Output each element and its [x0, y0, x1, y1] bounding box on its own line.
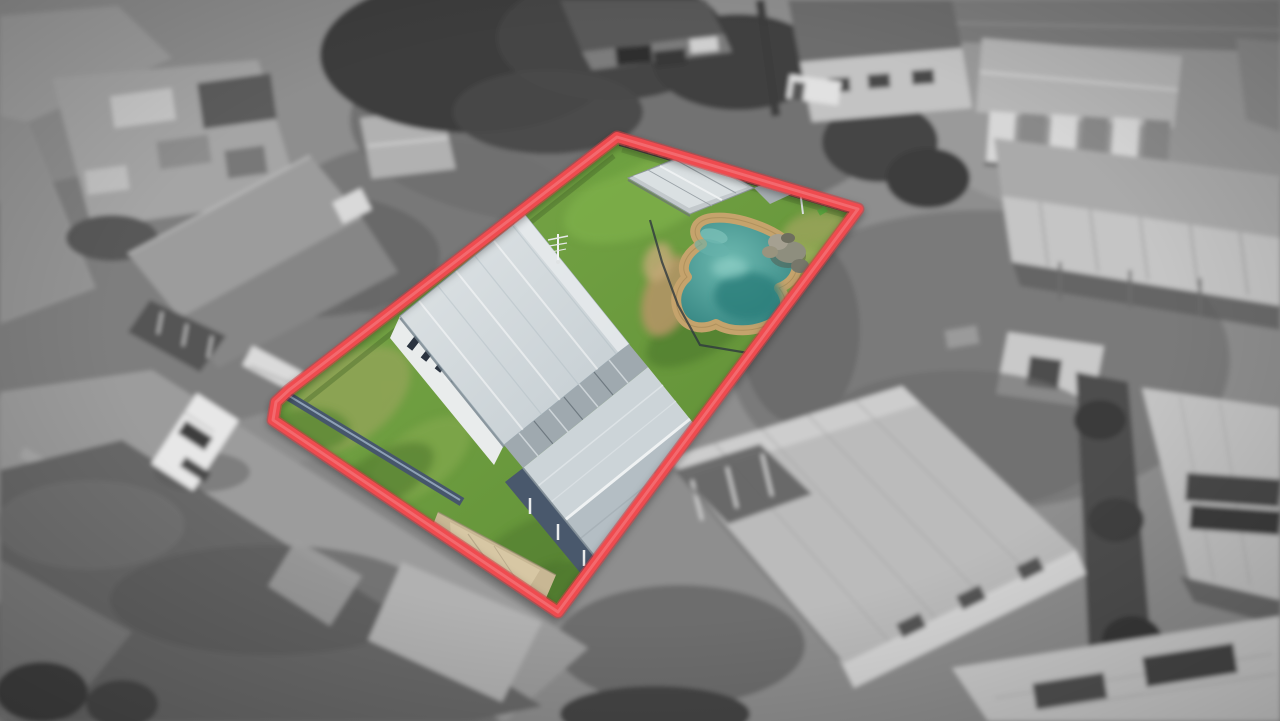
photo-vignette [0, 0, 1280, 721]
aerial-photo-canvas [0, 0, 1280, 721]
aerial-property-photo [0, 0, 1280, 721]
